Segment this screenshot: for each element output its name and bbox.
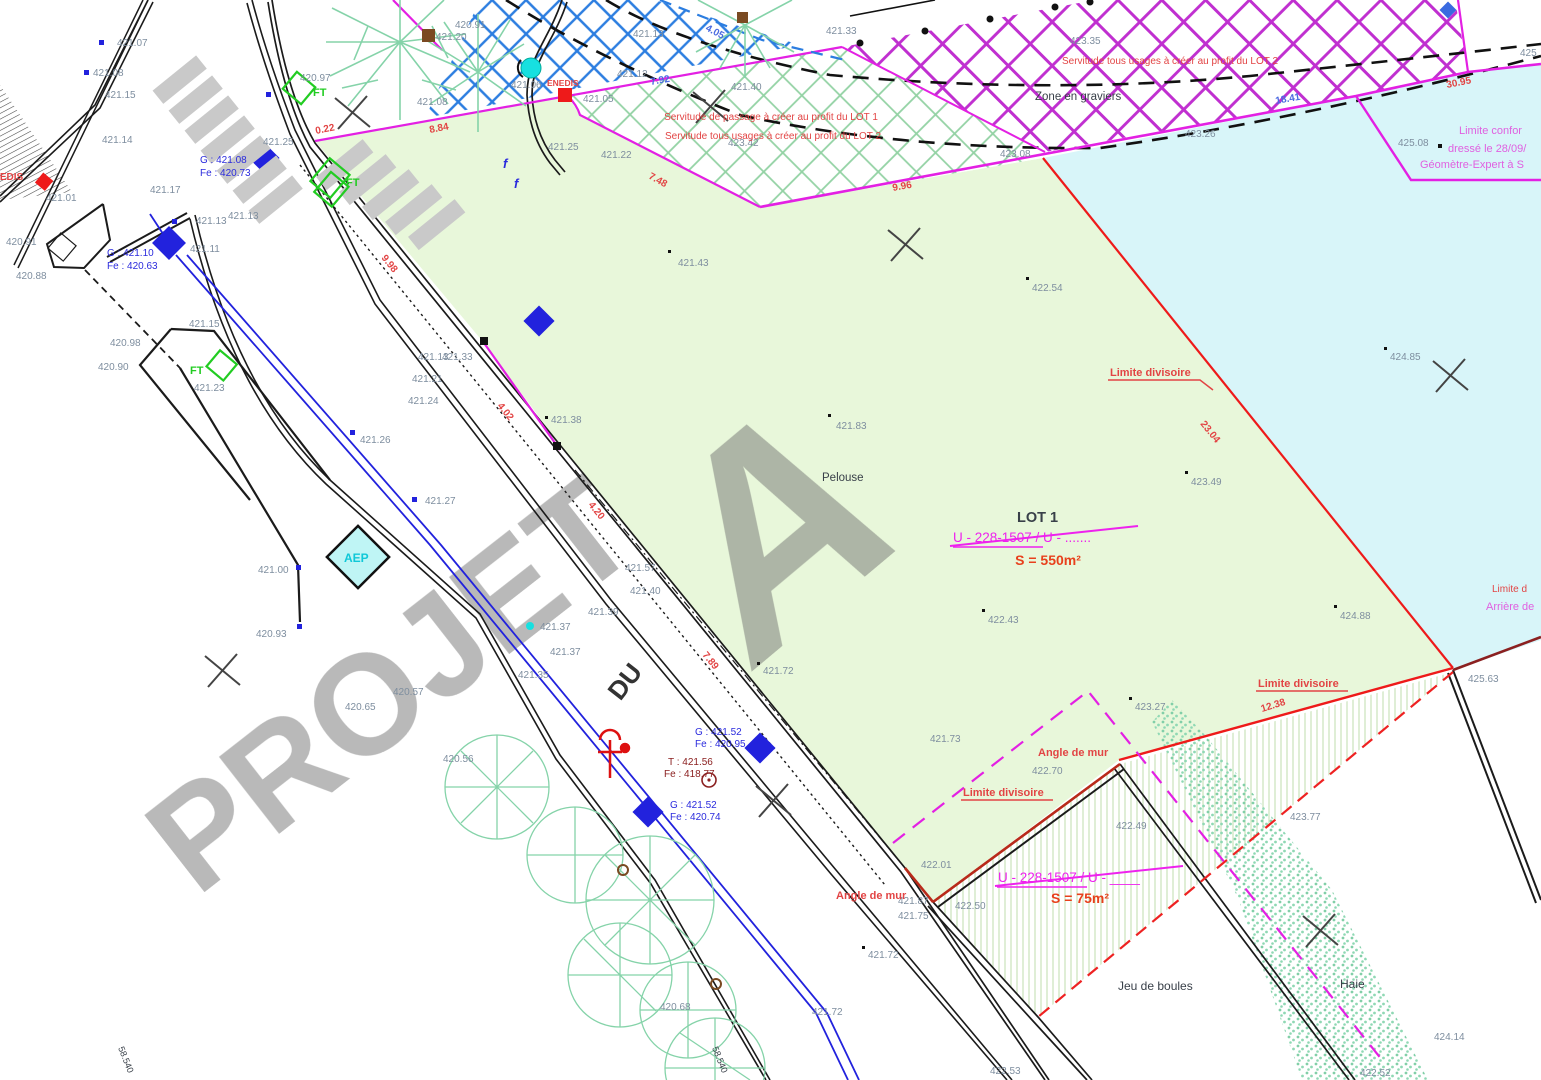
svg-text:421.57: 421.57 — [625, 563, 656, 574]
svg-text:Servitude tous usages à créer: Servitude tous usages à créer au profit … — [1062, 56, 1278, 67]
svg-text:421.25: 421.25 — [548, 142, 579, 153]
svg-text:dressé le 28/09/: dressé le 28/09/ — [1448, 143, 1527, 155]
svg-text:424.14: 424.14 — [1434, 1032, 1465, 1043]
svg-text:423.26: 423.26 — [1185, 129, 1216, 140]
svg-text:Limite d: Limite d — [1492, 584, 1527, 595]
svg-text:425: 425 — [1520, 48, 1537, 59]
svg-text:420.90: 420.90 — [98, 362, 129, 373]
svg-text:Fe : 420.95: Fe : 420.95 — [695, 739, 746, 750]
svg-text:421.00: 421.00 — [258, 565, 289, 576]
svg-text:421.05: 421.05 — [583, 94, 614, 105]
svg-text:420.88: 420.88 — [16, 271, 47, 282]
svg-text:G : 421.10: G : 421.10 — [107, 248, 154, 259]
svg-text:421.39: 421.39 — [588, 607, 619, 618]
svg-text:421.35: 421.35 — [518, 670, 549, 681]
svg-text:421.23: 421.23 — [194, 383, 225, 394]
svg-text:421.22: 421.22 — [601, 150, 632, 161]
svg-text:Servitude de passage à créer a: Servitude de passage à créer au profit d… — [664, 112, 878, 123]
svg-text:422.43: 422.43 — [988, 615, 1019, 626]
svg-text:423.49: 423.49 — [1191, 477, 1222, 488]
svg-text:Arrière de: Arrière de — [1486, 601, 1534, 613]
svg-text:Fe : 420.73: Fe : 420.73 — [200, 168, 251, 179]
svg-text:421.38: 421.38 — [551, 415, 582, 426]
svg-text:Angle de mur: Angle de mur — [1038, 747, 1109, 759]
svg-text:421.17: 421.17 — [150, 185, 181, 196]
svg-text:Limite divisoire: Limite divisoire — [963, 787, 1044, 799]
svg-text:Limite confor: Limite confor — [1459, 125, 1522, 137]
svg-text:S = 75m²: S = 75m² — [1051, 890, 1109, 906]
svg-text:425.63: 425.63 — [1468, 674, 1499, 685]
svg-text:421.33: 421.33 — [826, 26, 857, 37]
svg-text:421.75: 421.75 — [898, 911, 929, 922]
svg-text:G : 421.52: G : 421.52 — [695, 727, 742, 738]
svg-text:421.83: 421.83 — [836, 421, 867, 432]
svg-text:421.06: 421.06 — [511, 80, 542, 91]
svg-text:G : 421.08: G : 421.08 — [200, 155, 247, 166]
svg-text:421.72: 421.72 — [763, 666, 794, 677]
svg-text:420.65: 420.65 — [345, 702, 376, 713]
svg-text:Jeu de boules: Jeu de boules — [1118, 979, 1193, 993]
svg-text:424.85: 424.85 — [1390, 352, 1421, 363]
svg-text:420.98: 420.98 — [110, 338, 141, 349]
svg-text:Limite divisoire: Limite divisoire — [1258, 678, 1339, 690]
svg-text:423.77: 423.77 — [1290, 812, 1321, 823]
svg-text:Fe : 420.74: Fe : 420.74 — [670, 812, 721, 823]
svg-text:421.27: 421.27 — [425, 496, 456, 507]
svg-text:421.25: 421.25 — [263, 137, 294, 148]
svg-text:421.20: 421.20 — [436, 32, 467, 43]
svg-text:421.13: 421.13 — [196, 216, 227, 227]
svg-text:ENEDIS: ENEDIS — [0, 172, 24, 183]
svg-text:LOT 1: LOT 1 — [1017, 510, 1058, 526]
svg-text:421.13: 421.13 — [633, 29, 664, 40]
svg-text:420.56: 420.56 — [443, 754, 474, 765]
svg-text:Angle de mur: Angle de mur — [836, 890, 907, 902]
svg-text:421.72: 421.72 — [812, 1007, 843, 1018]
svg-text:421.15: 421.15 — [189, 319, 220, 330]
svg-text:423.08: 423.08 — [1000, 149, 1031, 160]
svg-text:422.53: 422.53 — [990, 1066, 1021, 1077]
svg-text:420.93: 420.93 — [256, 629, 287, 640]
svg-text:425.08: 425.08 — [1398, 138, 1429, 149]
svg-text:Servitude tous usages à créer: Servitude tous usages à créer au profit … — [665, 131, 881, 142]
svg-text:424.88: 424.88 — [1340, 611, 1371, 622]
svg-text:422.54: 422.54 — [1032, 283, 1063, 294]
svg-text:421.13: 421.13 — [418, 352, 449, 363]
svg-text:Limite divisoire: Limite divisoire — [1110, 367, 1191, 379]
svg-text:AEP: AEP — [344, 551, 369, 565]
svg-text:420.68: 420.68 — [660, 1002, 691, 1013]
svg-text:421.11: 421.11 — [190, 244, 220, 255]
svg-text:421.37: 421.37 — [550, 647, 581, 658]
svg-text:Géomètre-Expert à S: Géomètre-Expert à S — [1420, 159, 1524, 171]
svg-text:G : 421.52: G : 421.52 — [670, 800, 717, 811]
svg-text:421.37: 421.37 — [540, 622, 571, 633]
svg-text:FT: FT — [346, 177, 360, 189]
svg-text:421.01: 421.01 — [46, 193, 77, 204]
svg-text:421.43: 421.43 — [678, 258, 709, 269]
svg-text:S = 550m²: S = 550m² — [1015, 552, 1081, 568]
svg-text:421.13: 421.13 — [228, 211, 259, 222]
svg-text:421.14: 421.14 — [102, 135, 133, 146]
svg-text:421.15: 421.15 — [105, 90, 136, 101]
svg-text:Fe : 418.77: Fe : 418.77 — [664, 769, 715, 780]
svg-text:421.08: 421.08 — [93, 68, 124, 79]
svg-text:ENEDIS: ENEDIS — [547, 78, 579, 88]
svg-text:422.49: 422.49 — [1116, 821, 1147, 832]
svg-text:FT: FT — [190, 365, 204, 377]
svg-text:420.91: 420.91 — [6, 237, 37, 248]
svg-text:421.12: 421.12 — [617, 69, 648, 80]
svg-text:421.40: 421.40 — [731, 82, 762, 93]
svg-text:Haie: Haie — [1340, 977, 1365, 991]
svg-text:421.24: 421.24 — [408, 396, 439, 407]
svg-text:FT: FT — [313, 87, 327, 99]
svg-text:423.35: 423.35 — [1070, 36, 1101, 47]
svg-text:421.40: 421.40 — [630, 586, 661, 597]
svg-text:422.52: 422.52 — [1360, 1068, 1391, 1079]
svg-text:421.26: 421.26 — [360, 435, 391, 446]
svg-text:422.70: 422.70 — [1032, 766, 1063, 777]
svg-text:421.08: 421.08 — [417, 97, 448, 108]
svg-text:T : 421.56: T : 421.56 — [668, 757, 713, 768]
svg-text:421.07: 421.07 — [117, 38, 148, 49]
svg-text:422.50: 422.50 — [955, 901, 986, 912]
svg-text:420.91: 420.91 — [455, 20, 486, 31]
svg-text:421.73: 421.73 — [930, 734, 961, 745]
svg-text:Pelouse: Pelouse — [822, 472, 864, 484]
svg-text:420.57: 420.57 — [393, 687, 424, 698]
svg-text:Fe : 420.63: Fe : 420.63 — [107, 261, 158, 272]
svg-text:421.72: 421.72 — [868, 950, 899, 961]
svg-text:422.01: 422.01 — [921, 860, 952, 871]
svg-text:421.21: 421.21 — [412, 374, 443, 385]
svg-text:423.27: 423.27 — [1135, 702, 1166, 713]
svg-text:Zone en graviers: Zone en graviers — [1035, 91, 1122, 103]
svg-text:420.97: 420.97 — [300, 73, 331, 84]
